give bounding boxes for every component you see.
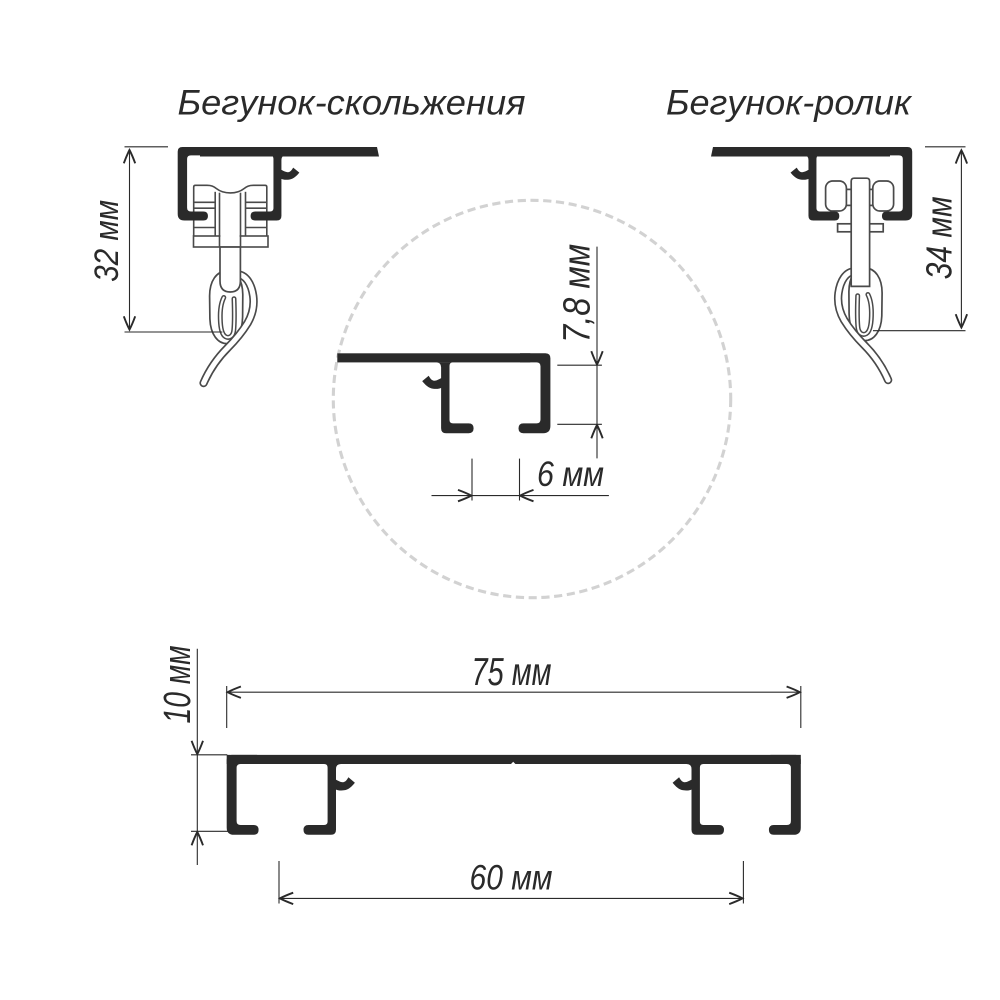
- svg-text:75 мм: 75 мм: [472, 651, 552, 694]
- svg-text:32 мм: 32 мм: [88, 200, 126, 282]
- svg-text:10 мм: 10 мм: [157, 646, 199, 724]
- svg-text:7,8 мм: 7,8 мм: [557, 244, 599, 343]
- svg-text:34 мм: 34 мм: [919, 196, 960, 279]
- svg-text:Бегунок-ролик: Бегунок-ролик: [666, 84, 913, 123]
- svg-text:6 мм: 6 мм: [537, 455, 604, 494]
- svg-text:Бегунок-скольжения: Бегунок-скольжения: [178, 84, 526, 123]
- svg-text:60 мм: 60 мм: [470, 859, 553, 898]
